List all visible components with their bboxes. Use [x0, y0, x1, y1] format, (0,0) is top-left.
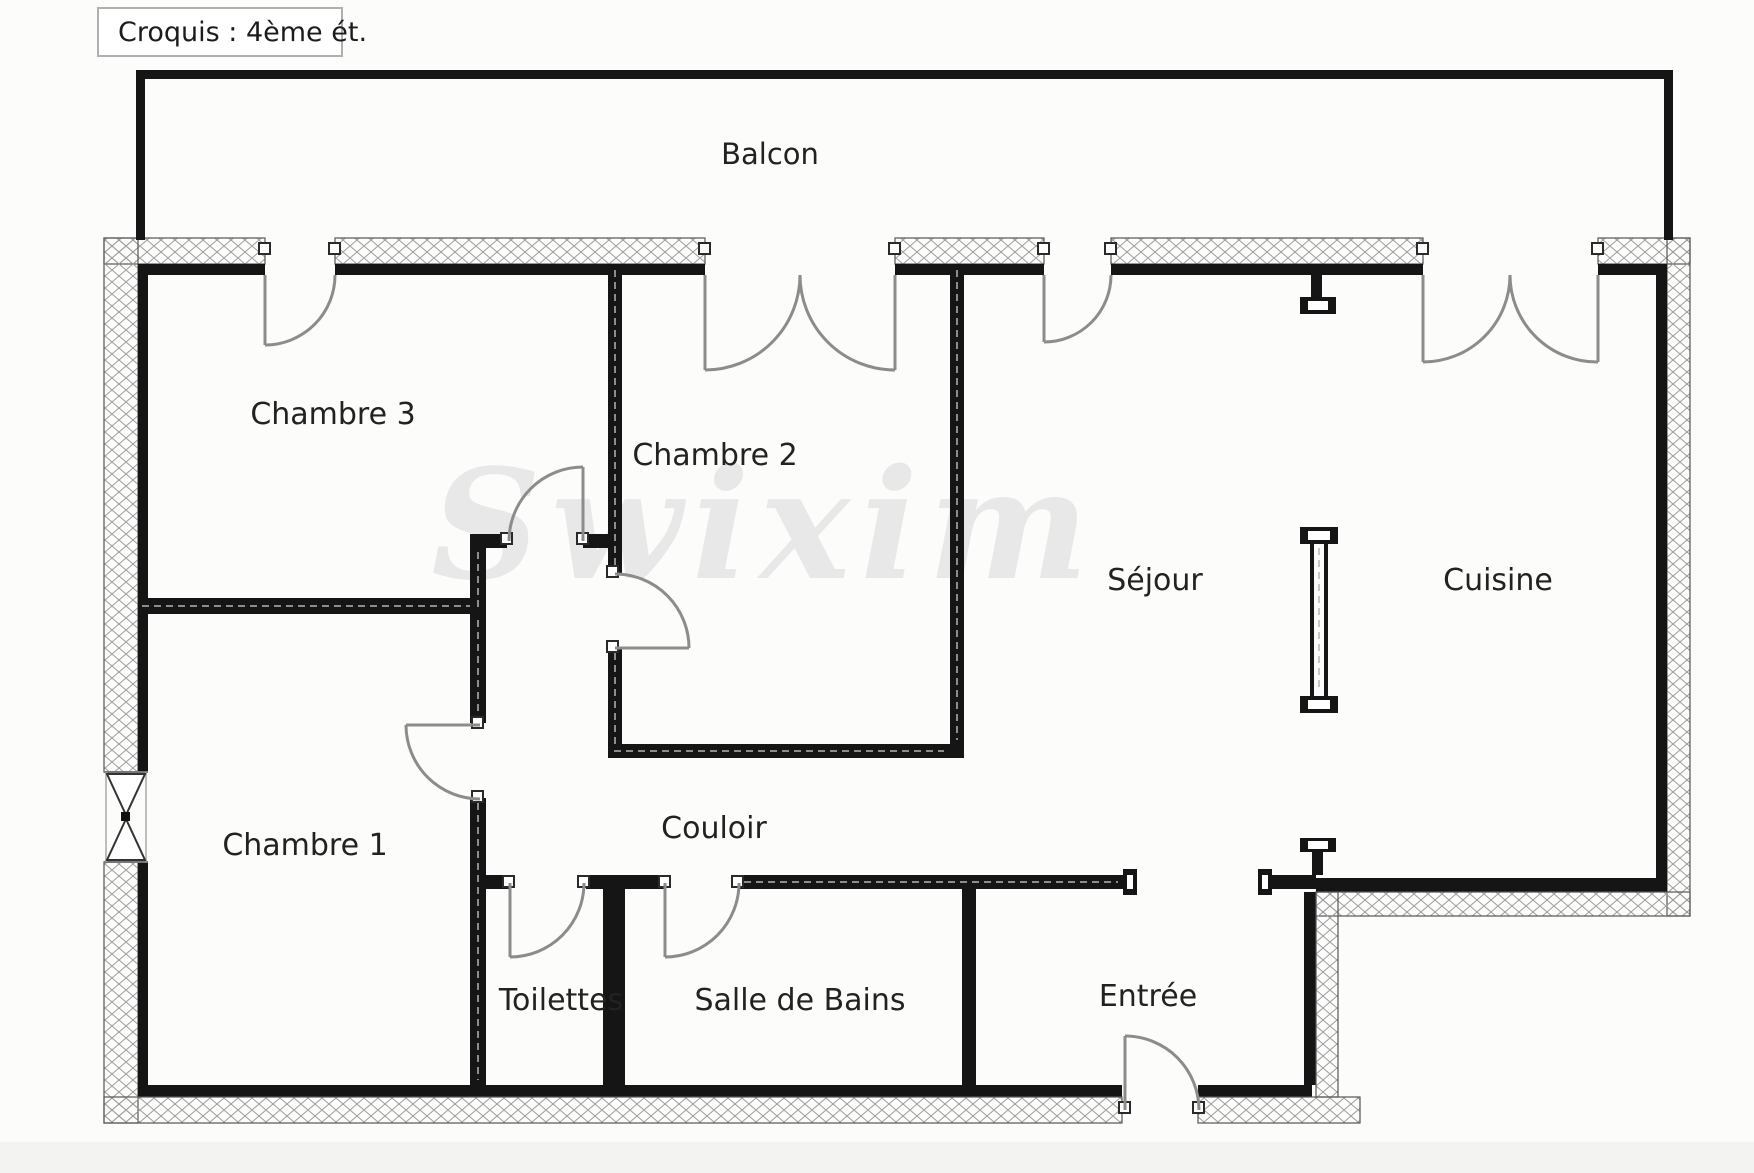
floorplan-page: Swixim	[0, 0, 1754, 1173]
bottom-margin-strip	[0, 1142, 1754, 1173]
label-balcon: Balcon	[721, 137, 819, 171]
label-entree: Entrée	[1099, 979, 1197, 1014]
label-chambre3: Chambre 3	[250, 397, 415, 432]
title-box: Croquis : 4ème ét.	[98, 8, 367, 56]
floorplan-drawing: Swixim	[0, 0, 1754, 1173]
label-chambre2: Chambre 2	[632, 438, 797, 473]
label-sejour: Séjour	[1107, 563, 1203, 598]
label-couloir: Couloir	[661, 811, 767, 846]
label-salle-de-bains: Salle de Bains	[694, 983, 905, 1018]
label-toilettes: Toilettes	[498, 983, 623, 1018]
label-cuisine: Cuisine	[1443, 563, 1553, 598]
label-chambre1: Chambre 1	[222, 828, 387, 863]
plan-title: Croquis : 4ème ét.	[118, 17, 367, 48]
